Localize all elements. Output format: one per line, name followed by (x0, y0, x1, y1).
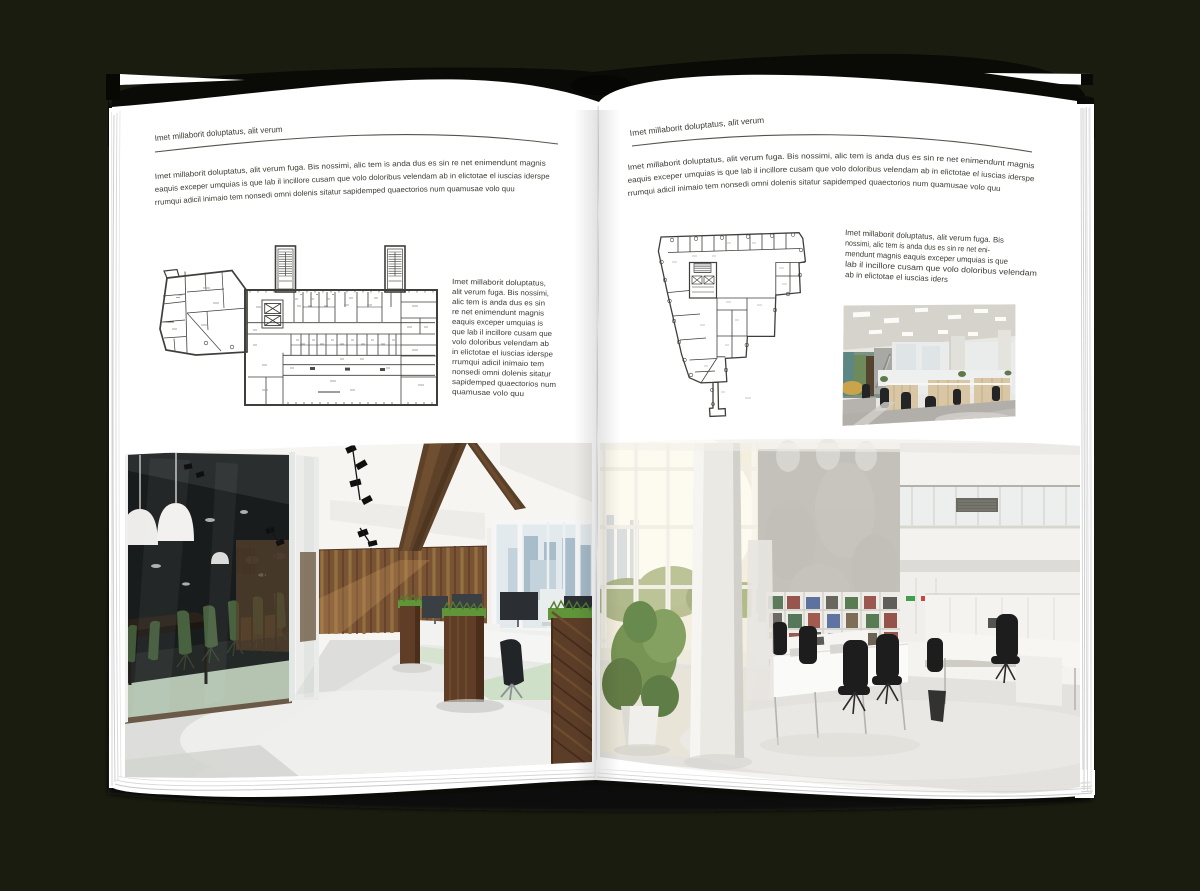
svg-text:eaquis exceper umquias is: eaquis exceper umquias is (452, 317, 543, 328)
svg-text:alit verum fuga. Bis nossimi,: alit verum fuga. Bis nossimi, (452, 287, 549, 298)
svg-text:alic tem is anda dus es sin: alic tem is anda dus es sin (452, 297, 545, 308)
svg-text:Imet millaborit doluptatus,: Imet millaborit doluptatus, (452, 277, 546, 288)
svg-text:re net enimendunt magnis: re net enimendunt magnis (452, 307, 544, 318)
